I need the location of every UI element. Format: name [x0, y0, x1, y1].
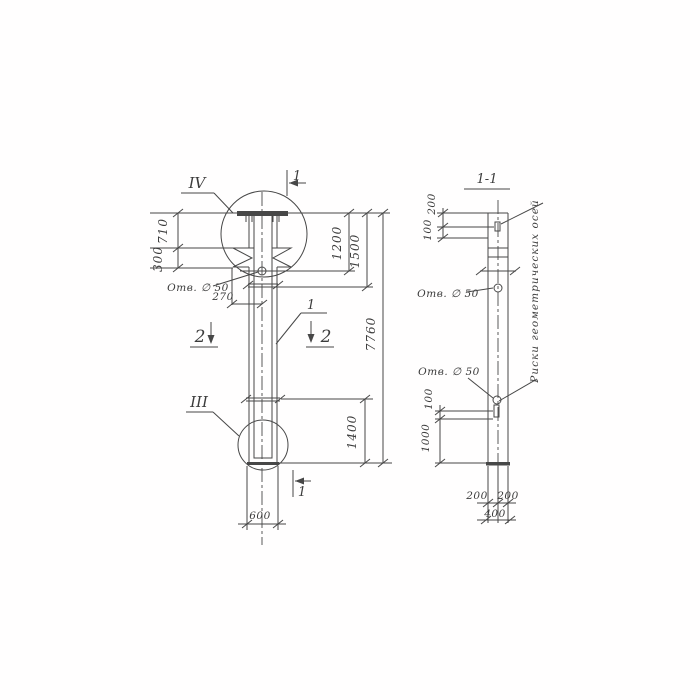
dim-400-label: 400	[483, 508, 506, 520]
dim-710: 710	[156, 218, 170, 244]
dim-1200-label: 1200	[330, 226, 344, 261]
axes-note: Риски геометрических осей	[499, 199, 543, 401]
dim-1500: 1500	[348, 209, 372, 291]
section-column-tip	[486, 462, 510, 466]
dim-7760-label: 7760	[364, 317, 378, 352]
dim-200-top-label: 200	[426, 193, 438, 216]
section-mark-2-right: 2	[306, 321, 334, 347]
joint-lower	[241, 395, 285, 403]
dim-600-label: 600	[249, 510, 271, 522]
dim-200-right-label: 200	[496, 490, 519, 502]
section-mark-2-left: 2	[190, 322, 218, 347]
detail-marker-iii: III	[186, 393, 239, 436]
section-title: 1-1	[477, 172, 498, 187]
axes-note-label: Риски геометрических осей	[529, 199, 541, 383]
pile-column-drawing: IV III 1 1 2	[0, 0, 700, 700]
dim-300: 300	[151, 246, 165, 272]
dim-100-bottom-label: 100	[423, 388, 435, 410]
dim-200-left-label: 200	[465, 490, 488, 502]
dim-200-200-400: 200 200 400	[465, 466, 519, 524]
dim-200-100-top: 200 100	[422, 193, 494, 242]
dim-100-top-label: 100	[422, 219, 434, 241]
dim-1500-label: 1500	[348, 234, 362, 269]
column-shaft	[247, 258, 279, 465]
detail-marker-iv: IV	[181, 174, 233, 213]
dim-7760: 7760	[364, 209, 388, 467]
dim-710-300: 710 300	[150, 209, 233, 272]
section-1-top-label: 1	[293, 169, 301, 184]
technical-drawing-sheet: IV III 1 1 2	[0, 0, 700, 700]
hole-callout-section-top: Отв. ∅ 50	[417, 288, 493, 300]
axis-mark-top	[495, 222, 500, 231]
element-mark-1: 1	[276, 298, 327, 344]
element-mark-label: 1	[307, 298, 315, 313]
dim-1400: 1400	[345, 395, 370, 467]
detail-iii-label: III	[189, 393, 209, 411]
detail-circle-top	[221, 191, 307, 277]
hole-label-section-top: Отв. ∅ 50	[417, 288, 479, 300]
top-plate	[237, 211, 288, 216]
detail-iv-label: IV	[188, 174, 208, 192]
dim-270-label: 270	[211, 291, 234, 303]
hole-label-section-bottom: Отв. ∅ 50	[418, 366, 480, 378]
dim-1000-label: 1000	[420, 424, 432, 453]
dim-1400-label: 1400	[345, 415, 359, 450]
section-mark-1-bottom: 1	[293, 470, 311, 500]
column-tip	[247, 462, 279, 465]
section-1-bottom-label: 1	[298, 485, 306, 500]
section-2-right-label: 2	[320, 327, 332, 347]
section-view-1-1: 1-1 Отв. ∅ 50 Отв. ∅ 50	[417, 172, 543, 524]
section-2-left-label: 2	[194, 327, 206, 347]
front-view: IV III 1 1 2	[150, 169, 392, 545]
section-mark-1-top: 1	[287, 169, 306, 196]
dim-100-1000-bottom: 100 1000	[420, 388, 493, 467]
